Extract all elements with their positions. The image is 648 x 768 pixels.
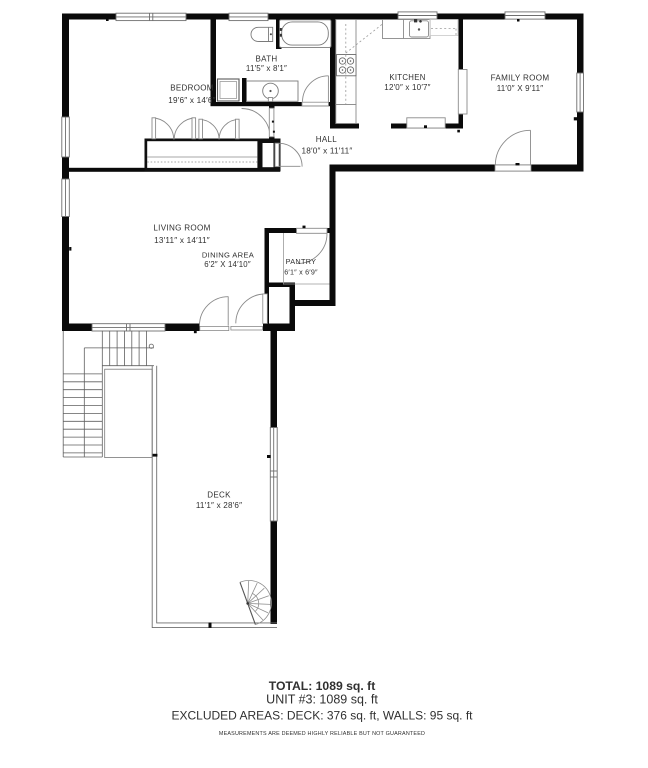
svg-text:13′11″ x 14′11″: 13′11″ x 14′11″	[154, 236, 210, 245]
svg-text:EXCLUDED AREAS: DECK: 376 sq.: EXCLUDED AREAS: DECK: 376 sq. ft, WALLS:…	[171, 708, 473, 722]
svg-text:BATH: BATH	[256, 54, 278, 63]
svg-text:KITCHEN: KITCHEN	[389, 73, 425, 82]
svg-text:19′6″ x 14′6″: 19′6″ x 14′6″	[168, 96, 215, 105]
svg-text:18′0″ x 11′11″: 18′0″ x 11′11″	[302, 147, 353, 156]
svg-text:DINING AREA: DINING AREA	[202, 251, 255, 260]
svg-text:BEDROOM: BEDROOM	[170, 84, 213, 93]
svg-text:MEASUREMENTS ARE DEEMED HIGHLY: MEASUREMENTS ARE DEEMED HIGHLY RELIABLE …	[219, 731, 425, 737]
svg-text:HALL: HALL	[316, 135, 337, 144]
svg-text:11′1″ x 28′6″: 11′1″ x 28′6″	[196, 501, 242, 510]
svg-text:6′2″ X 14′10″: 6′2″ X 14′10″	[204, 260, 251, 269]
svg-text:11′0″ X 9′11″: 11′0″ X 9′11″	[497, 84, 544, 93]
svg-text:UNIT #3: 1089 sq. ft: UNIT #3: 1089 sq. ft	[266, 693, 378, 707]
svg-text:LIVING ROOM: LIVING ROOM	[153, 224, 210, 233]
svg-text:TOTAL: 1089 sq. ft: TOTAL: 1089 sq. ft	[269, 679, 376, 693]
svg-text:11′5″ x 8′1″: 11′5″ x 8′1″	[246, 64, 287, 73]
svg-text:FAMILY ROOM: FAMILY ROOM	[491, 73, 550, 82]
svg-text:12′0″ x 10′7″: 12′0″ x 10′7″	[384, 83, 430, 92]
svg-text:PANTRY: PANTRY	[286, 257, 317, 266]
svg-text:DECK: DECK	[207, 490, 231, 499]
svg-text:6′1″ x 6′9″: 6′1″ x 6′9″	[284, 267, 318, 276]
